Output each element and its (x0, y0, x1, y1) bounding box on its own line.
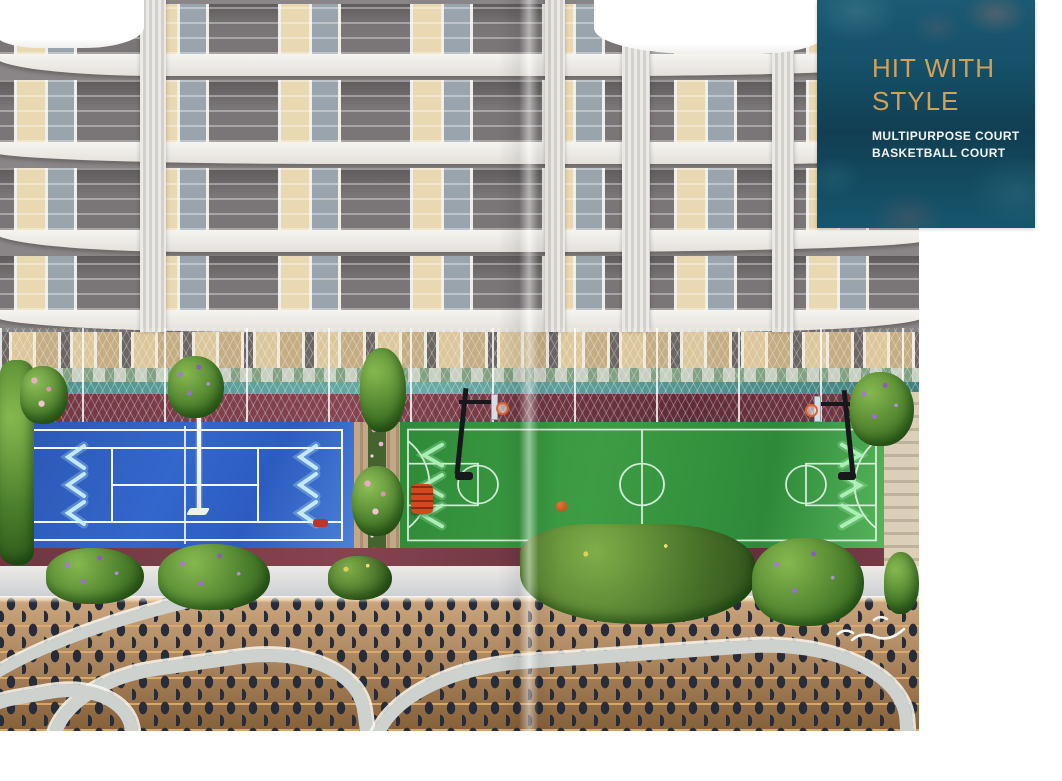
flower-planter (20, 366, 68, 424)
hedge (884, 552, 919, 614)
feature-card: HIT WITH STYLE MULTIPURPOSE COURT BASKET… (817, 0, 1035, 228)
red-gear-bag (313, 519, 328, 527)
card-title-line: HIT WITH (872, 52, 1021, 85)
hanging-vine (520, 524, 755, 624)
paving-strip (0, 368, 919, 382)
flower-bush (850, 372, 914, 446)
tennis-court-markings (16, 422, 354, 548)
hedge (46, 548, 144, 604)
multipurpose-court (16, 422, 354, 548)
feature-item: BASKETBALL COURT (872, 145, 1021, 162)
birds-icon (834, 606, 918, 654)
card-feature-list: MULTIPURPOSE COURT BASKETBALL COURT (872, 128, 1021, 162)
basketball-hoop-right (796, 390, 856, 484)
deck-tree (360, 348, 406, 432)
facade-column (545, 0, 565, 332)
sky (0, 0, 144, 48)
feature-item: MULTIPURPOSE COURT (872, 128, 1021, 145)
flower-bush (352, 466, 404, 536)
card-title: HIT WITH STYLE (872, 52, 1021, 118)
flower-planter (168, 356, 224, 418)
card-title-line: STYLE (872, 85, 1021, 118)
aerial-render-photo (0, 0, 919, 731)
facade-column (140, 0, 166, 332)
brochure-page: HIT WITH STYLE MULTIPURPOSE COURT BASKET… (0, 0, 1062, 781)
hedge (328, 556, 392, 600)
ball-cart (411, 484, 433, 514)
hedge (158, 544, 270, 610)
basketball-hoop-left (455, 388, 515, 484)
ground-floor-glass (0, 332, 919, 368)
basketball (556, 501, 567, 512)
sky (594, 0, 822, 54)
